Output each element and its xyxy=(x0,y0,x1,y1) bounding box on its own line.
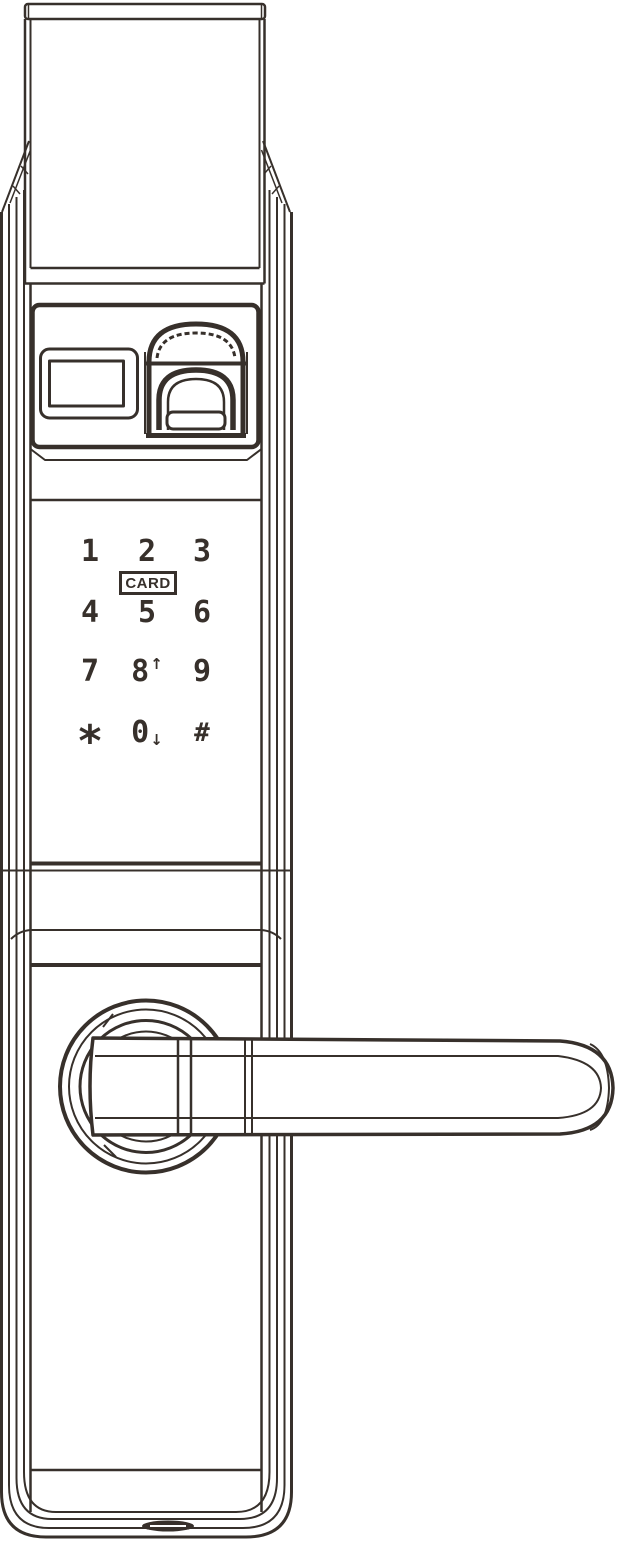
card-label: CARD xyxy=(125,575,170,592)
key-1[interactable]: 1 xyxy=(66,533,114,571)
key-star[interactable]: * xyxy=(66,714,114,752)
handle-lever[interactable] xyxy=(90,1038,613,1135)
right-shoulder-bevel xyxy=(262,141,291,212)
key-0[interactable]: 0↓ xyxy=(123,714,171,752)
panel-bevel-seam xyxy=(31,449,262,500)
key-9[interactable]: 9 xyxy=(178,653,226,691)
key-8[interactable]: 8↑ xyxy=(123,653,171,691)
key-6[interactable]: 6 xyxy=(178,594,226,632)
key-4[interactable]: 4 xyxy=(66,594,114,632)
key-2[interactable]: 2 xyxy=(123,533,171,571)
smart-lock-technical-drawing: 1 2 3 CARD 4 5 6 7 8↑ 9 * 0↓ # xyxy=(0,0,617,1541)
key-3[interactable]: 3 xyxy=(178,533,226,571)
mid-body-seams xyxy=(2,864,292,966)
up-arrow-icon: ↑ xyxy=(150,657,163,672)
sensor-panel xyxy=(33,305,259,447)
key-7[interactable]: 7 xyxy=(66,653,114,691)
key-5[interactable]: 5 xyxy=(123,594,171,632)
key-hash[interactable]: # xyxy=(178,714,226,752)
bottom-cap xyxy=(31,1470,262,1532)
down-arrow-icon: ↓ xyxy=(150,733,163,748)
lock-line-art xyxy=(0,0,617,1541)
fingerprint-sensor-pad[interactable] xyxy=(167,412,225,429)
card-reader-area[interactable]: CARD xyxy=(119,571,177,595)
top-cap xyxy=(25,4,265,284)
